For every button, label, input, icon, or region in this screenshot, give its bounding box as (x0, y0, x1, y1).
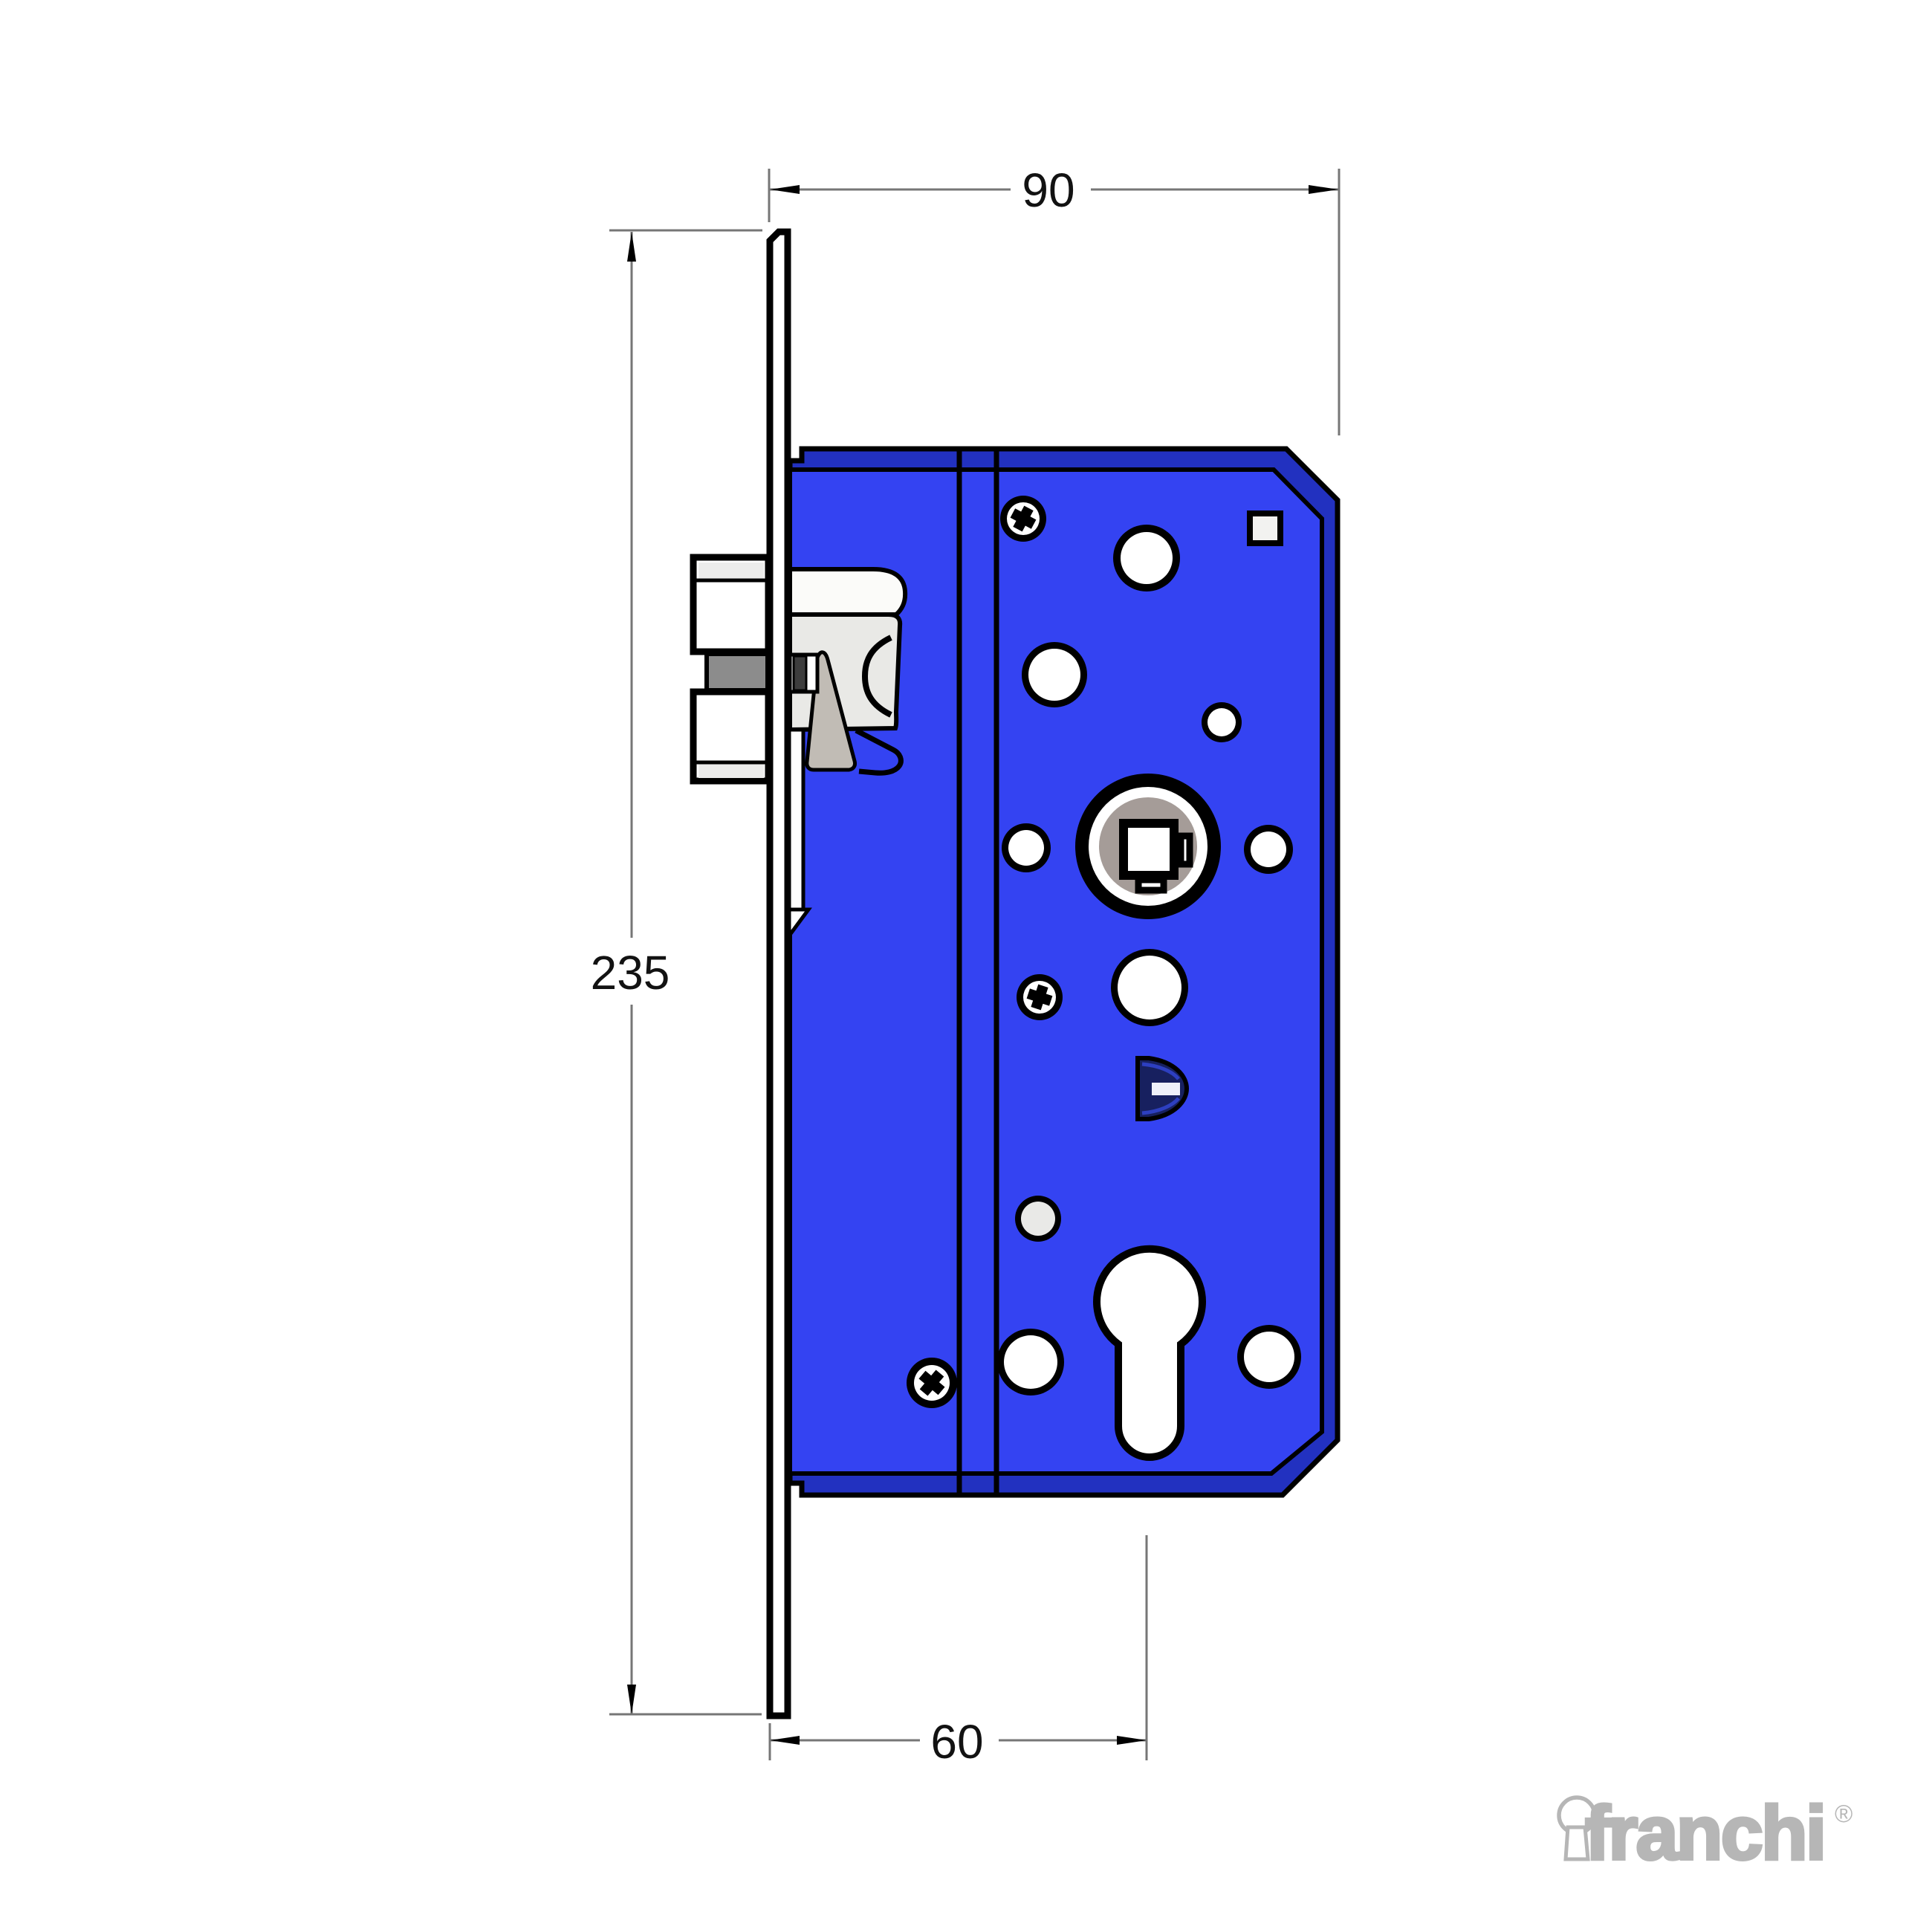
svg-text:90: 90 (1022, 163, 1074, 217)
svg-text:60: 60 (930, 1715, 983, 1769)
svg-text:235: 235 (591, 946, 670, 999)
svg-text:franchi: franchi (1585, 1790, 1824, 1876)
svg-text:®: ® (1835, 1800, 1852, 1827)
